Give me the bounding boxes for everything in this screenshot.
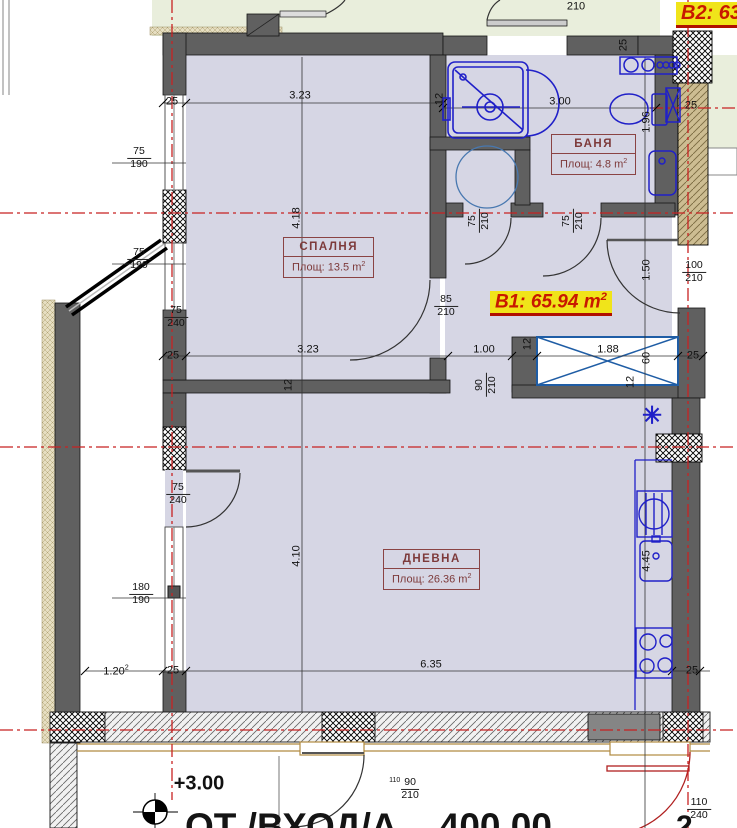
dim-1-88: 1.88 (597, 345, 618, 356)
corner-window (66, 240, 167, 315)
apartment-b2-label: B2: 63.0 (676, 2, 737, 28)
dim-3-23-top: 3.23 (289, 91, 310, 102)
room-label-bedroom: СПАЛНЯ Площ: 13.5 m2 (283, 237, 374, 278)
door-size-75-210-b: 75210 (561, 209, 585, 233)
dim-1-50: 1.50 (642, 259, 653, 280)
dim-25-mid-left: 25 (167, 351, 179, 362)
dim-4-18: 4.18 (292, 207, 303, 228)
dim-60: 60 (642, 352, 653, 364)
floor-plan-drawing (0, 0, 737, 828)
dim-12-partition: 12 (284, 379, 295, 391)
dim-25-right: 25 (685, 101, 697, 112)
dim-3-23-mid: 3.23 (297, 345, 318, 356)
room-label-bath: БАНЯ Площ: 4.8 m2 (551, 134, 636, 175)
door-size-75-210-a: 75210 (467, 209, 491, 233)
dim-4-45: 4.45 (642, 550, 653, 571)
door-size-100-210: 100210 (682, 260, 706, 284)
floor-plan-canvas: B1: 65.94 m2 B2: 63.0 СПАЛНЯ Площ: 13.5 … (0, 0, 737, 828)
dim-1-00: 1.00 (473, 345, 494, 356)
dim-12-shower: 12 (435, 93, 446, 105)
star-symbol: ✳ (642, 402, 662, 431)
window-size-75-190-b: 75190 (127, 247, 151, 271)
window-size-75-190-a: 75190 (127, 146, 151, 170)
dim-4-10: 4.10 (292, 545, 303, 566)
dim-25-bot-left: 25 (167, 666, 179, 677)
door-size-85-210: 85210 (434, 294, 458, 318)
dim-12-shaft2: 12 (626, 376, 637, 388)
bottom-title: ОТ /ВХОД/А 400.00 (185, 806, 552, 828)
dim-3-00: 3.00 (549, 97, 570, 108)
adjacent-structure-lines (3, 0, 9, 95)
dim-210-top: 210 (567, 2, 585, 13)
dim-25-mid-right: 25 (687, 351, 699, 362)
door-size-75-240-a: 75240 (164, 305, 188, 329)
dim-12-shaft: 12 (523, 338, 534, 350)
terrace-door-size-90-210: 11090210 (389, 777, 419, 801)
dim-25-ne: 25 (619, 39, 630, 51)
level-marker-icon (133, 793, 178, 828)
dim-6-35: 6.35 (420, 660, 441, 671)
door-size-75-240-b: 75240 (166, 482, 190, 506)
dim-25-top-left: 25 (166, 97, 178, 108)
dim-1-20: 1.202 (103, 665, 128, 678)
bottom-title-sup: 2 (676, 810, 693, 828)
dim-25-bot-right: 25 (686, 666, 698, 677)
dim-1-96: 1.96 (642, 111, 653, 132)
apartment-b1-label: B1: 65.94 m2 (490, 291, 612, 316)
door-size-90-210: 90210 (474, 373, 498, 397)
level-label: +3.00 (174, 773, 225, 796)
room-label-living: ДНЕВНА Площ: 26.36 m2 (383, 549, 480, 590)
window-size-180-190: 180190 (129, 582, 153, 606)
